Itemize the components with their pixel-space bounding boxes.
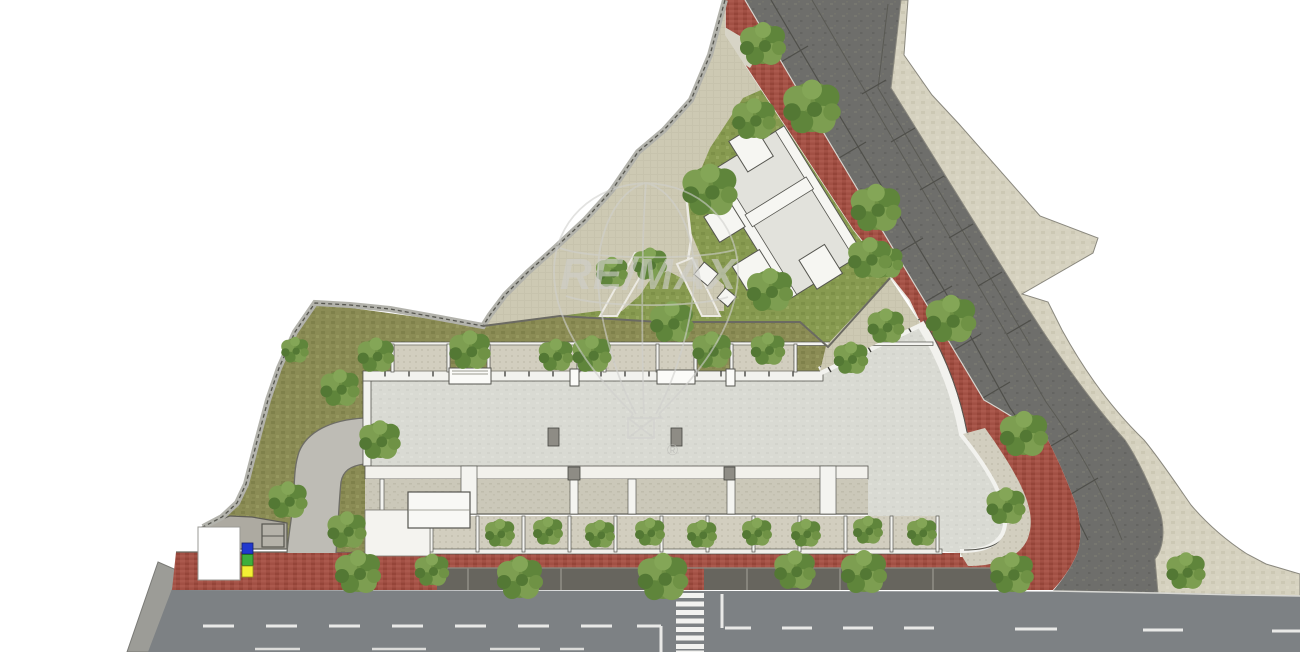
svg-text:®: ® xyxy=(667,442,678,459)
svg-text:RE/MAX: RE/MAX xyxy=(560,250,739,299)
